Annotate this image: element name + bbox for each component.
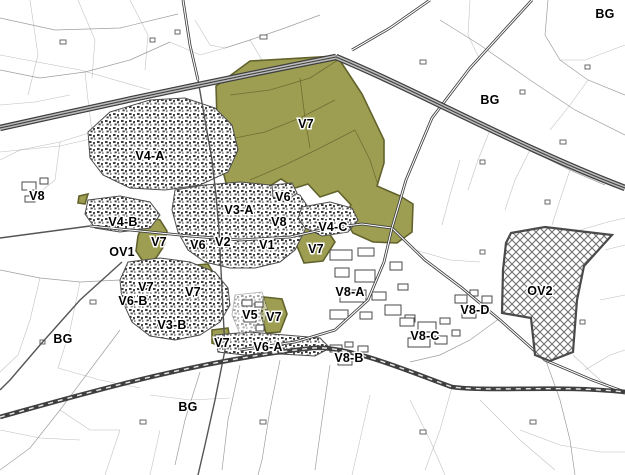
zone-label-v7: V7 bbox=[151, 235, 167, 249]
zone-label-v7: V7 bbox=[185, 285, 201, 299]
zoning-map-screenshot: BGBGV4-AV8V7V6V3-AV8V4-CV4-BOV1V7V6V2V1V… bbox=[0, 0, 625, 475]
zone-label-v8-c: V8-C bbox=[410, 329, 439, 343]
zone-label-v4-c: V4-C bbox=[318, 220, 347, 234]
zone-label-v7: V7 bbox=[266, 310, 282, 324]
zone-label-v6-a: V6-A bbox=[253, 340, 282, 354]
urban-v4a bbox=[88, 98, 238, 190]
zone-label-ov2: OV2 bbox=[527, 284, 553, 298]
zone-label-v6-b: V6-B bbox=[118, 294, 147, 308]
zone-label-v6: V6 bbox=[275, 190, 291, 204]
zone-label-v4-a: V4-A bbox=[135, 149, 164, 163]
zone-label-v7: V7 bbox=[214, 336, 230, 350]
zone-label-v8-a: V8-A bbox=[335, 285, 364, 299]
zone-label-v7: V7 bbox=[308, 242, 324, 256]
zone-label-v5: V5 bbox=[242, 308, 258, 322]
zone-label-v7: V7 bbox=[138, 280, 154, 294]
zone-label-v2: V2 bbox=[215, 235, 231, 249]
zone-label-v7: V7 bbox=[298, 117, 314, 131]
zone-label-bg: BG bbox=[53, 332, 72, 346]
zoning-map-image: BGBGV4-AV8V7V6V3-AV8V4-CV4-BOV1V7V6V2V1V… bbox=[0, 0, 625, 475]
zone-label-v8-d: V8-D bbox=[460, 303, 489, 317]
zone-label-v1: V1 bbox=[259, 238, 275, 252]
zone-label-v8: V8 bbox=[271, 215, 287, 229]
zone-label-bg: BG bbox=[480, 93, 499, 107]
zone-label-v6: V6 bbox=[190, 238, 206, 252]
zone-label-v8-b: V8-B bbox=[334, 351, 363, 365]
zone-label-bg: BG bbox=[595, 7, 614, 21]
zone-label-ov1: OV1 bbox=[109, 245, 135, 259]
zone-label-v3-a: V3-A bbox=[224, 203, 253, 217]
zone-label-v4-b: V4-B bbox=[108, 215, 137, 229]
zone-label-bg: BG bbox=[178, 400, 197, 414]
zone-label-v8: V8 bbox=[29, 189, 45, 203]
zone-label-v3-b: V3-B bbox=[157, 318, 186, 332]
